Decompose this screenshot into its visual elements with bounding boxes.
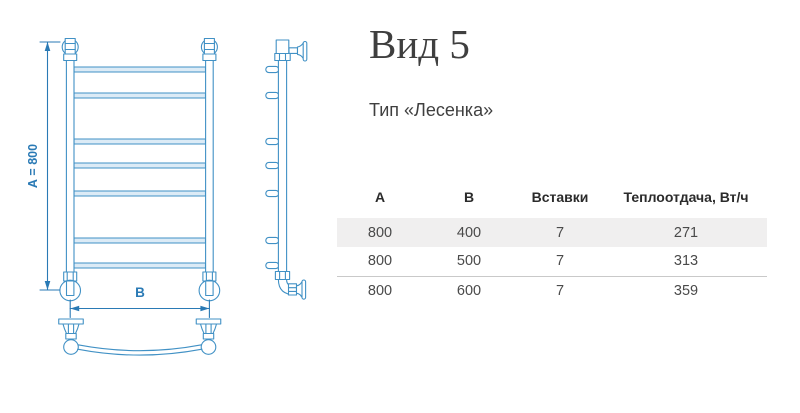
cell-heat-output: 313 — [605, 247, 767, 276]
bottom-view-valve-right — [196, 319, 221, 354]
top-fitting-left — [62, 39, 78, 61]
page-title: Вид 5 — [369, 22, 470, 67]
dimension-a-label: А = 800 — [26, 144, 40, 188]
page-subtitle: Тип «Лесенка» — [369, 100, 493, 121]
bottom-fitting-right — [199, 272, 220, 301]
table-row: 800 600 7 359 — [337, 276, 767, 305]
cell-heat-output: 271 — [605, 218, 767, 247]
column-header-inserts: Вставки — [515, 186, 605, 218]
bottom-view-valve-left — [59, 319, 84, 354]
cell-inserts: 7 — [515, 218, 605, 247]
side-top-bracket — [275, 40, 307, 61]
table-row: 800 400 7 271 — [337, 218, 767, 247]
left-post — [66, 56, 74, 272]
dimension-b-label: В — [135, 285, 145, 300]
cell-b: 400 — [423, 218, 515, 247]
column-header-a: А — [337, 186, 423, 218]
page: А = 800 В — [0, 0, 800, 413]
cell-b: 500 — [423, 247, 515, 276]
dimension-b — [70, 300, 209, 318]
column-header-b: В — [423, 186, 515, 218]
side-view — [266, 40, 307, 299]
spec-table: А В Вставки Теплоотдача, Вт/ч 800 400 7 … — [337, 186, 767, 305]
table-row: 800 500 7 313 — [337, 247, 767, 276]
spec-table-container: А В Вставки Теплоотдача, Вт/ч 800 400 7 … — [337, 186, 767, 305]
technical-drawing: А = 800 В — [0, 0, 340, 413]
dimension-a — [40, 42, 60, 290]
side-rung-stubs — [266, 66, 279, 268]
curved-rung — [78, 345, 202, 355]
rungs — [74, 67, 206, 268]
side-post — [278, 56, 286, 272]
bottom-fitting-left — [60, 272, 81, 301]
cell-a: 800 — [337, 276, 423, 305]
table-header-row: А В Вставки Теплоотдача, Вт/ч — [337, 186, 767, 218]
cell-a: 800 — [337, 247, 423, 276]
bottom-view — [59, 319, 221, 355]
cell-b: 600 — [423, 276, 515, 305]
cell-inserts: 7 — [515, 276, 605, 305]
right-post — [206, 56, 214, 272]
cell-a: 800 — [337, 218, 423, 247]
cell-heat-output: 359 — [605, 276, 767, 305]
front-view — [60, 39, 220, 301]
side-bottom-bracket — [275, 272, 305, 300]
top-fitting-right — [201, 39, 217, 61]
cell-inserts: 7 — [515, 247, 605, 276]
column-header-heat-output: Теплоотдача, Вт/ч — [605, 186, 767, 218]
